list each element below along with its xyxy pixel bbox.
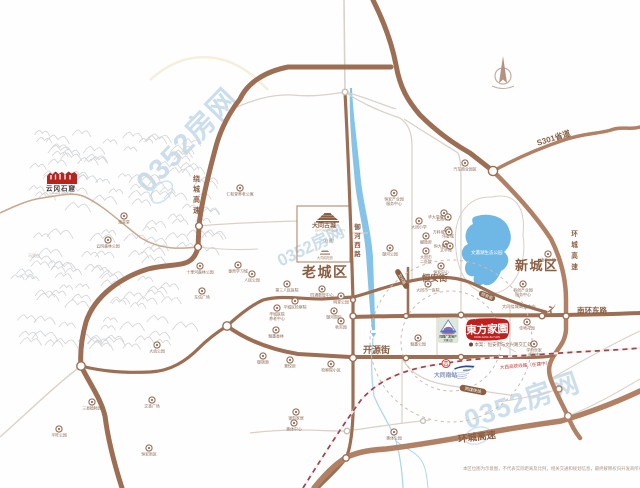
svg-text:河: 河 xyxy=(354,231,361,240)
svg-text:文慧广场: 文慧广场 xyxy=(144,404,160,409)
svg-text:三县植物园: 三县植物园 xyxy=(82,406,102,411)
svg-text:同煤广发地产: 同煤广发地产 xyxy=(440,334,457,339)
svg-text:秋实园: 秋实园 xyxy=(335,325,347,330)
svg-text:奥体公园: 奥体公园 xyxy=(386,436,402,441)
svg-text:大同绕城高速方向: 大同绕城高速方向 xyxy=(502,303,536,310)
svg-text:服务中心: 服务中心 xyxy=(515,292,531,297)
svg-text:大齿公园: 大齿公园 xyxy=(149,349,165,354)
svg-text:环: 环 xyxy=(571,230,578,238)
svg-text:高: 高 xyxy=(571,251,578,260)
svg-text:樾隐府: 樾隐府 xyxy=(420,240,432,245)
svg-text:银凯家居: 银凯家居 xyxy=(288,416,304,421)
svg-text:城: 城 xyxy=(193,185,200,194)
svg-text:翰墨香林: 翰墨香林 xyxy=(268,334,284,339)
svg-text:泰然学习城: 泰然学习城 xyxy=(228,269,248,274)
svg-text:二医院: 二医院 xyxy=(420,259,432,264)
svg-text:西: 西 xyxy=(354,241,361,249)
svg-text:恒大府: 恒大府 xyxy=(434,244,446,249)
svg-text:御锦源: 御锦源 xyxy=(257,360,269,365)
svg-text:华大学城: 华大学城 xyxy=(428,215,444,220)
svg-text:万科城: 万科城 xyxy=(433,230,445,235)
svg-text:南环东路: 南环东路 xyxy=(577,305,607,315)
svg-text:大同纯阳宫: 大同纯阳宫 xyxy=(317,255,333,260)
svg-text:服务中心: 服务中心 xyxy=(386,201,402,206)
svg-text:检察院小区: 检察院小区 xyxy=(321,368,341,373)
svg-text:养老中心: 养老中心 xyxy=(269,316,285,321)
svg-text:仁和堂养老公寓: 仁和堂养老公寓 xyxy=(226,192,253,197)
svg-text:速: 速 xyxy=(193,206,200,215)
svg-text:云冈石窟: 云冈石窟 xyxy=(46,184,76,193)
svg-text:本案：恒安街与文兴路交汇处: 本案：恒安街与文兴路交汇处 xyxy=(475,341,533,348)
svg-text:路: 路 xyxy=(354,249,361,258)
svg-text:御河公园: 御河公园 xyxy=(382,252,398,257)
svg-text:—— YUNGANG GROTTOES ——: —— YUNGANG GROTTOES —— xyxy=(44,192,79,195)
svg-text:四通数智中心: 四通数智中心 xyxy=(310,293,333,298)
svg-text:人民公园: 人民公园 xyxy=(244,278,260,283)
svg-text:汽车商业园区: 汽车商业园区 xyxy=(453,167,476,172)
svg-text:新城区: 新城区 xyxy=(515,258,559,273)
svg-text:规划中: 规划中 xyxy=(528,352,540,357)
svg-text:东信广场: 东信广场 xyxy=(194,295,210,300)
svg-text:云冈森林公园: 云冈森林公园 xyxy=(96,244,119,249)
svg-text:马武山: 马武山 xyxy=(28,252,40,258)
svg-text:速: 速 xyxy=(571,262,578,271)
svg-text:東方家園: 東方家園 xyxy=(466,321,509,336)
svg-text:十里河森林公园: 十里河森林公园 xyxy=(186,270,213,275)
svg-text:大同市一医院: 大同市一医院 xyxy=(416,288,439,293)
svg-text:明堂公园: 明堂公园 xyxy=(333,300,349,305)
svg-text:平城区检察院: 平城区检察院 xyxy=(283,305,306,310)
svg-text:高: 高 xyxy=(193,195,200,204)
svg-text:本区位图为示意图，不代表实际距离及比例，相关交通和规划信息，: 本区位图为示意图，不代表实际距离及比例，相关交通和规划信息，最终解释权归开发商所… xyxy=(463,465,640,472)
svg-text:恒安街: 恒安街 xyxy=(422,273,448,283)
svg-text:开源街: 开源街 xyxy=(363,344,390,355)
svg-text:佳地花园: 佳地花园 xyxy=(519,326,535,331)
svg-text:奥体中心: 奥体中心 xyxy=(286,427,302,432)
svg-text:观音堂: 观音堂 xyxy=(118,220,130,225)
svg-text:文瀛湖生态公园: 文瀛湖生态公园 xyxy=(471,249,503,256)
svg-text:第三人民医院: 第三人民医院 xyxy=(275,288,298,293)
svg-text:（在建）: （在建） xyxy=(321,238,336,243)
svg-text:绕: 绕 xyxy=(193,174,200,183)
svg-text:景悦府: 景悦府 xyxy=(284,364,296,369)
svg-text:DA TONG ANCIENT CITY: DA TONG ANCIENT CITY xyxy=(315,229,345,233)
svg-text:恒安新区: 恒安新区 xyxy=(141,452,157,457)
svg-text:平旺公园: 平旺公园 xyxy=(51,433,67,438)
svg-text:大同小学: 大同小学 xyxy=(411,225,427,230)
svg-text:老城区: 老城区 xyxy=(302,264,349,280)
svg-text:大同南站: 大同南站 xyxy=(434,371,457,379)
svg-text:大同古城: 大同古城 xyxy=(312,222,336,230)
svg-text:御: 御 xyxy=(353,222,361,231)
svg-text:翰墨公园: 翰墨公园 xyxy=(410,342,426,347)
svg-text:城: 城 xyxy=(571,240,578,249)
svg-text:DONG FANG JIA YUAN: DONG FANG JIA YUAN xyxy=(474,336,500,339)
